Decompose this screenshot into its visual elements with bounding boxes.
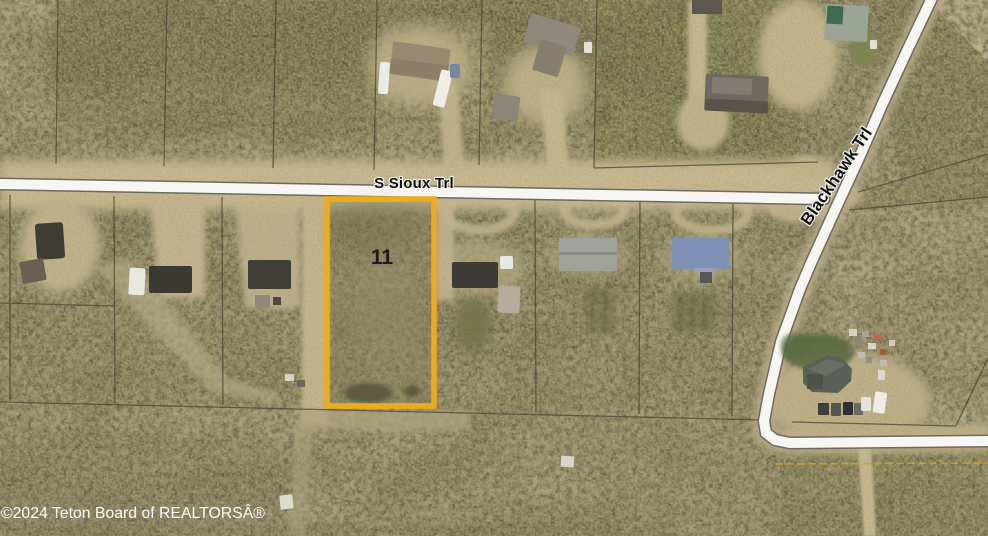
svg-text:S Sioux Trl: S Sioux Trl — [374, 175, 454, 192]
svg-text:©2024 Teton Board of REALTORSÂ: ©2024 Teton Board of REALTORSÂ® — [1, 503, 265, 522]
svg-text:11: 11 — [371, 246, 394, 269]
